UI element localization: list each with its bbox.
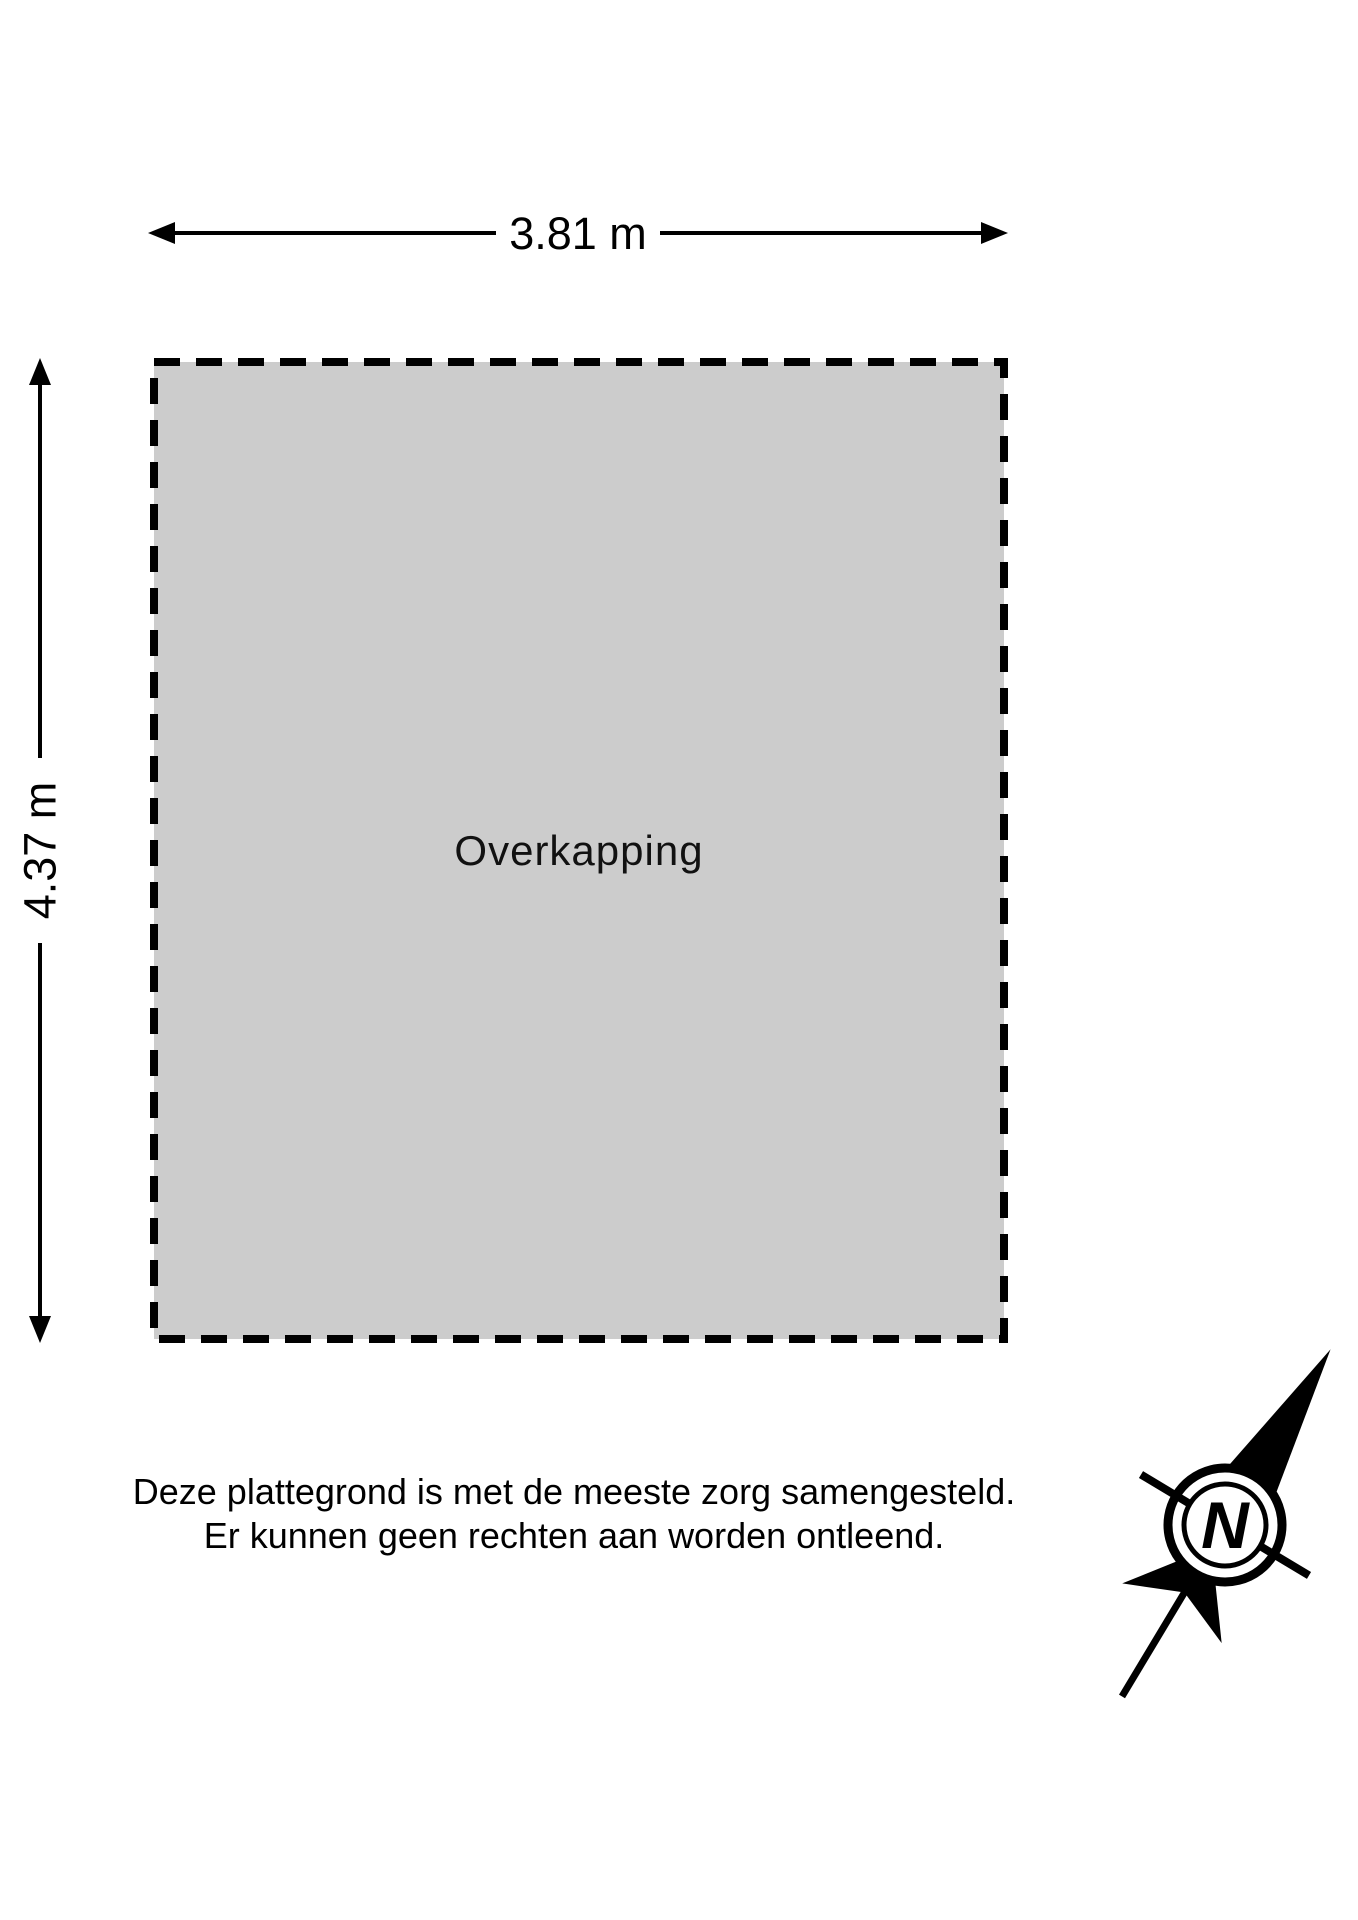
dimension-width: 3.81 m (148, 211, 1008, 255)
dimension-height: 4.37 m (18, 358, 62, 1343)
north-compass-icon: N (1085, 1310, 1358, 1720)
disclaimer: Deze plattegrond is met de meeste zorg s… (94, 1470, 1054, 1558)
floorplan-canvas: 3.81 m 4.37 m Overkapping Deze plattegro… (0, 0, 1358, 1920)
arrowhead-up-icon (29, 358, 51, 385)
dimension-line (38, 943, 42, 1316)
height-dimension-label: 4.37 m (18, 782, 63, 920)
dimension-line (660, 231, 981, 235)
dimension-line (38, 385, 42, 758)
disclaimer-line-1: Deze plattegrond is met de meeste zorg s… (94, 1470, 1054, 1514)
width-dimension-label: 3.81 m (496, 211, 660, 256)
arrowhead-down-icon (29, 1316, 51, 1343)
compass-north-label: N (1201, 1488, 1250, 1562)
disclaimer-line-2: Er kunnen geen rechten aan worden ontlee… (94, 1514, 1054, 1558)
dimension-line (175, 231, 496, 235)
arrowhead-right-icon (981, 222, 1008, 244)
room-label: Overkapping (150, 358, 1008, 1343)
height-dimension-labelbox: 4.37 m (0, 758, 109, 943)
arrowhead-left-icon (148, 222, 175, 244)
room-overkapping: Overkapping (150, 358, 1008, 1343)
